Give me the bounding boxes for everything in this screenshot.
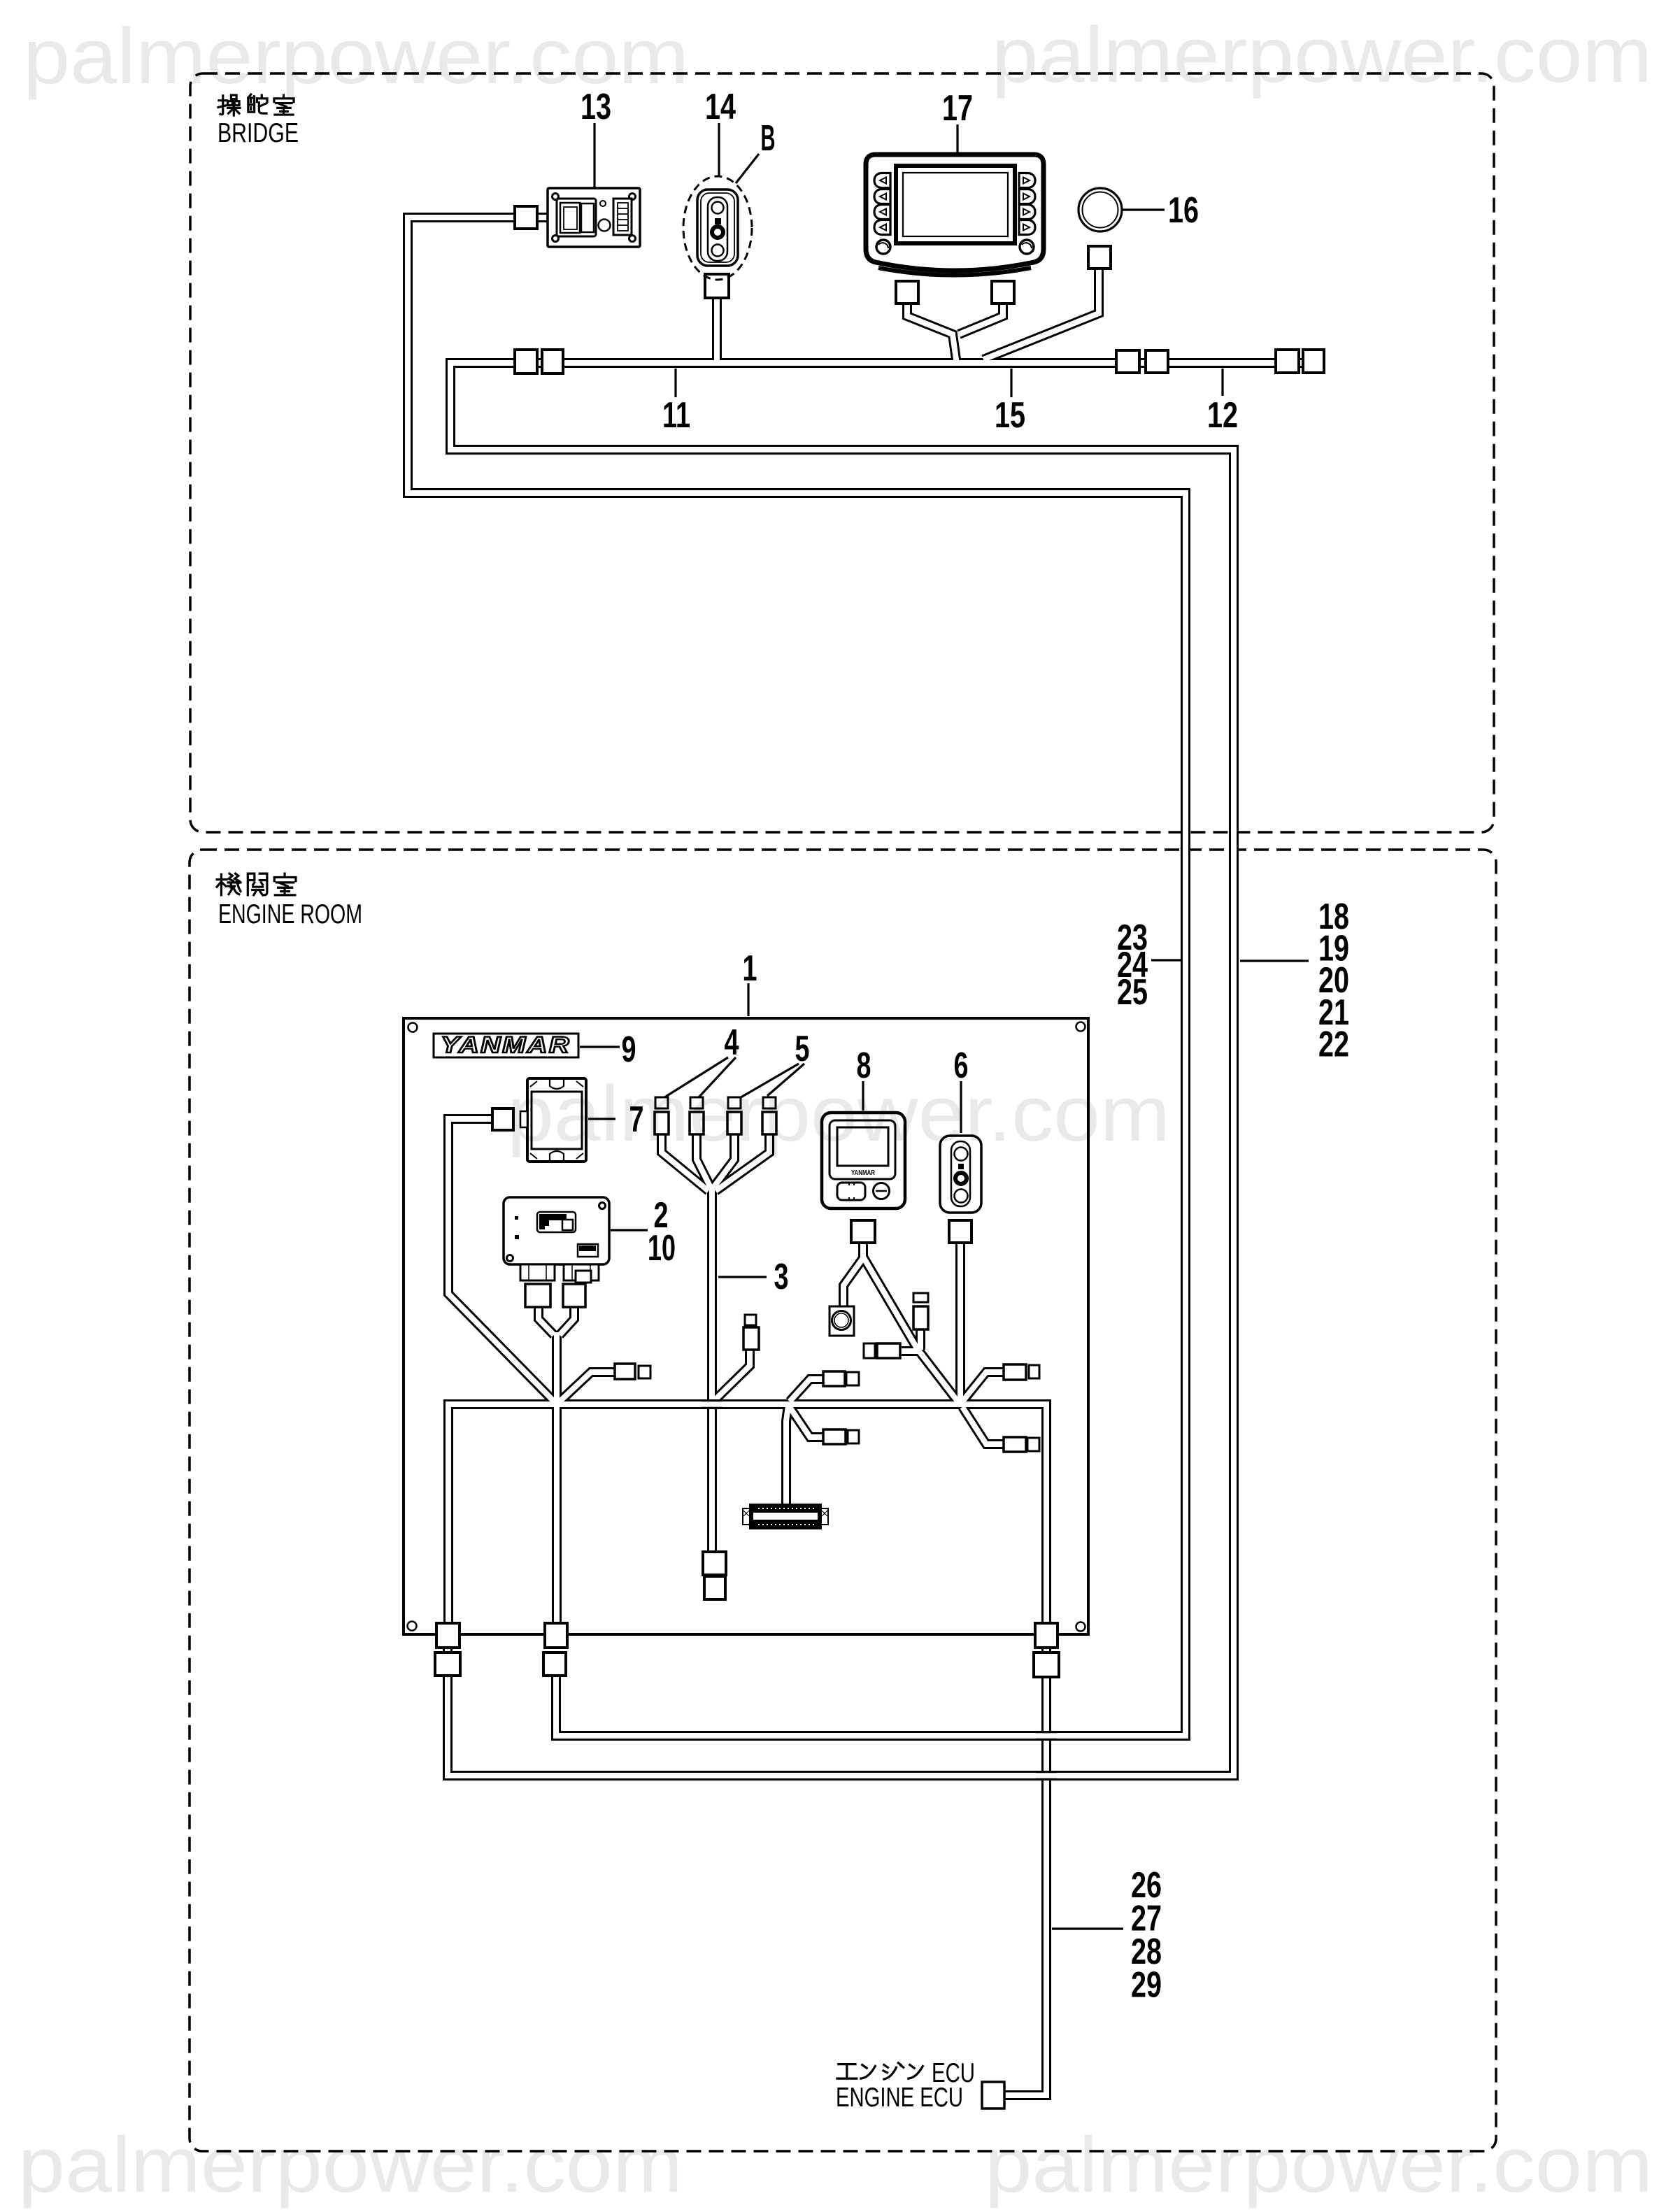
- svg-text:3: 3: [774, 1257, 789, 1297]
- svg-text:YANMAR: YANMAR: [851, 1169, 876, 1177]
- svg-text:4: 4: [725, 1022, 739, 1063]
- svg-text:9: 9: [622, 1029, 636, 1070]
- svg-text:15: 15: [995, 395, 1025, 436]
- svg-text:palmerpower.com: palmerpower.com: [23, 13, 689, 100]
- svg-text:29: 29: [1131, 1965, 1162, 2006]
- svg-text:BRIDGE: BRIDGE: [218, 118, 299, 148]
- svg-text:ENGINE ROOM: ENGINE ROOM: [218, 899, 362, 929]
- svg-text:YANMAR: YANMAR: [441, 1032, 571, 1057]
- svg-text:palmerpower.com: palmerpower.com: [992, 11, 1652, 99]
- svg-text:22: 22: [1318, 1024, 1349, 1064]
- svg-text:1: 1: [743, 948, 757, 989]
- svg-text:25: 25: [1117, 972, 1148, 1013]
- svg-text:17: 17: [942, 88, 973, 129]
- svg-text:11: 11: [662, 395, 690, 436]
- svg-text:14: 14: [705, 87, 736, 127]
- svg-text:palmerpower.com: palmerpower.com: [18, 2121, 683, 2209]
- svg-text:10: 10: [648, 1228, 676, 1269]
- svg-text:5: 5: [795, 1029, 810, 1069]
- svg-text:ECU: ECU: [932, 2058, 975, 2088]
- svg-text:palmerpower.com: palmerpower.com: [507, 1070, 1170, 1157]
- svg-text:B: B: [761, 118, 776, 159]
- svg-text:12: 12: [1207, 395, 1238, 436]
- svg-text:palmerpower.com: palmerpower.com: [985, 2121, 1653, 2209]
- svg-text:16: 16: [1168, 190, 1199, 231]
